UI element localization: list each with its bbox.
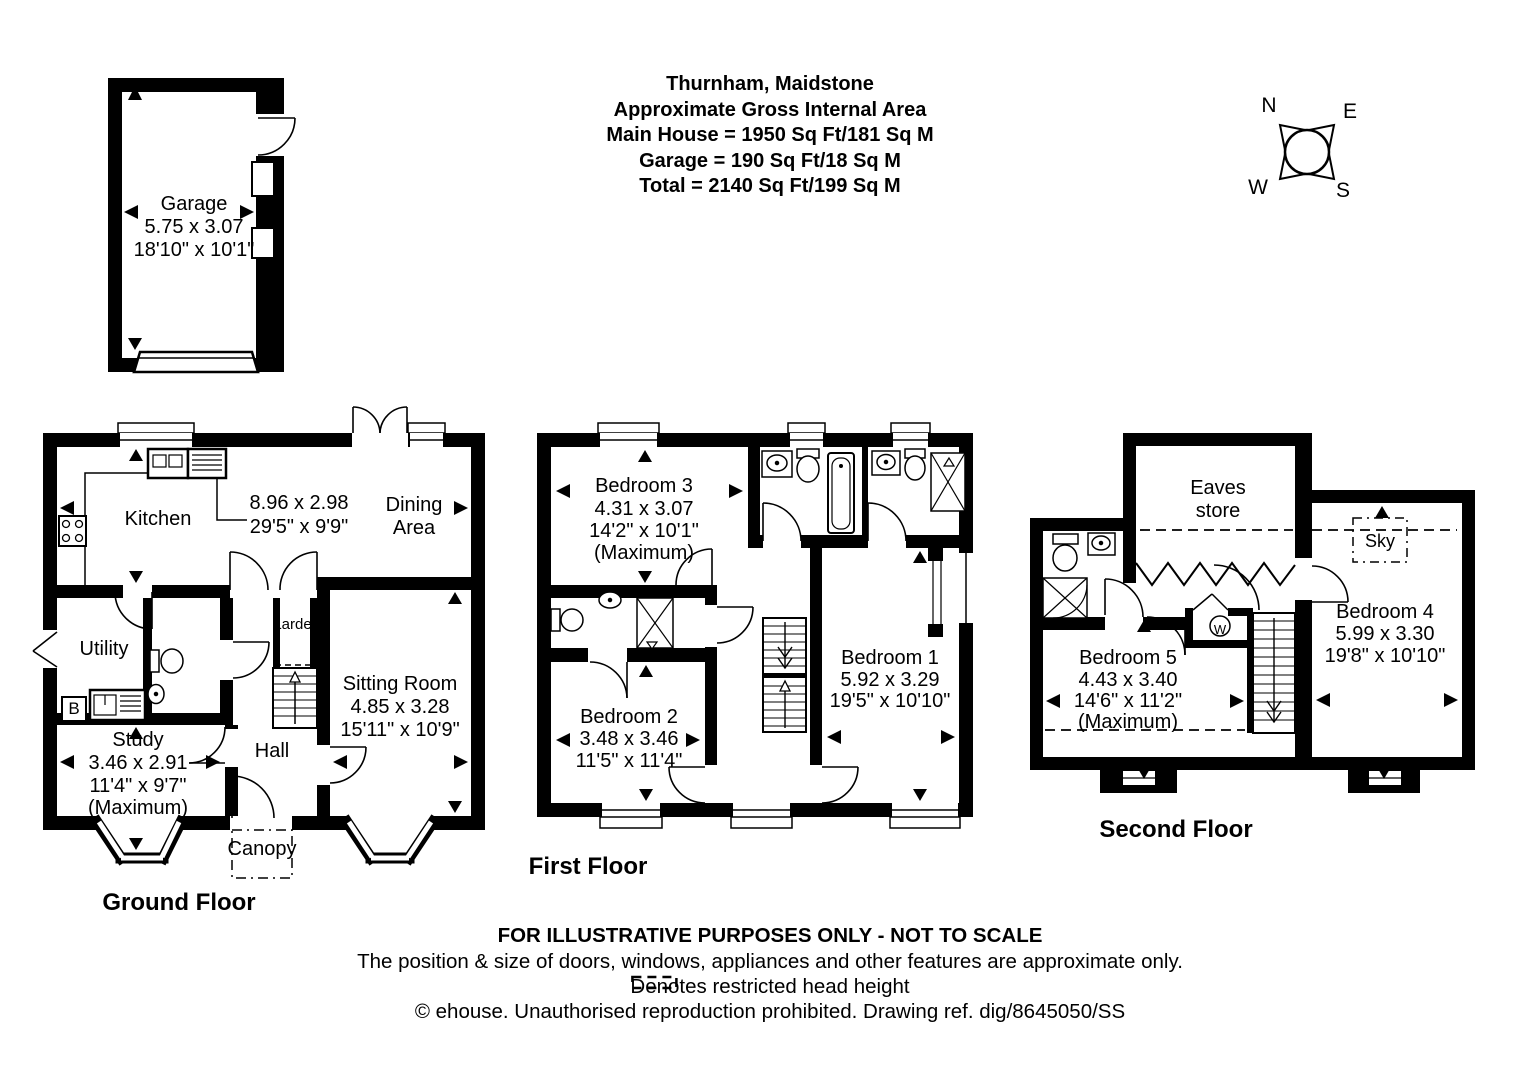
compass-n: N — [1261, 95, 1276, 117]
ground-floor-title: Ground Floor — [102, 892, 255, 914]
second-floor-stairs — [1253, 613, 1295, 733]
sitting-room-dims-imperial: 15'11" x 10'9" — [340, 719, 459, 741]
eaves-store-label2: store — [1196, 500, 1240, 522]
bedroom4-dims-metric: 5.99 x 3.30 — [1336, 623, 1435, 645]
bedroom5-dims-metric: 4.43 x 3.40 — [1079, 669, 1178, 691]
washer-label: W — [1214, 619, 1226, 641]
utility-label: Utility — [80, 638, 129, 660]
compass-icon — [1280, 125, 1334, 179]
utility-sink-icon — [90, 690, 145, 720]
hob-icon — [59, 516, 86, 546]
garage-dims-imperial: 18'10" x 10'1" — [134, 239, 255, 261]
sitting-room-dims-metric: 4.85 x 3.28 — [351, 696, 450, 718]
first-floor-title: First Floor — [529, 856, 648, 878]
wc-toilet-icon — [150, 649, 183, 673]
garage-label: Garage — [161, 193, 228, 215]
dormer-window-left — [1100, 757, 1177, 793]
canopy-label: Canopy — [228, 838, 297, 860]
bedroom3-max-note: (Maximum) — [594, 542, 694, 564]
bedroom3-dims-imperial: 14'2" x 10'1" — [589, 520, 699, 542]
bedroom5-dims-imperial: 14'6" x 11'2" — [1074, 690, 1182, 712]
boiler-label: B — [68, 698, 79, 720]
bedroom2-dims-imperial: 11'5" x 11'4" — [576, 750, 683, 772]
bedroom5-max-note: (Maximum) — [1078, 711, 1178, 733]
study-label: Study — [112, 729, 163, 751]
title-block: Thurnham, Maidstone Approximate Gross In… — [606, 72, 933, 200]
bedroom2-label: Bedroom 2 — [580, 706, 678, 728]
floorplan-page: Thurnham, Maidstone Approximate Gross In… — [0, 0, 1528, 1080]
garage-dims-metric: 5.75 x 3.07 — [145, 216, 244, 238]
study-dims-metric: 3.46 x 2.91 — [89, 752, 188, 774]
bedroom5-label: Bedroom 5 — [1079, 647, 1177, 669]
title-line: Approximate Gross Internal Area — [606, 98, 933, 124]
bedroom4-label: Bedroom 4 — [1336, 601, 1434, 623]
footer-restricted-note: Denotes restricted head height — [630, 975, 909, 999]
garage-vehicle-door — [134, 352, 258, 372]
title-line: Garage = 190 Sq Ft/18 Sq M — [606, 149, 933, 175]
sitting-room-label: Sitting Room — [343, 673, 458, 695]
bedroom3-dims-metric: 4.31 x 3.07 — [595, 498, 694, 520]
hall-label: Hall — [255, 740, 289, 762]
bedroom1-label: Bedroom 1 — [841, 647, 939, 669]
ground-floor-stairs — [273, 668, 317, 728]
bedroom2-dims-metric: 3.48 x 3.46 — [580, 728, 679, 750]
kitchen-dining-dims-imperial: 29'5" x 9'9" — [250, 516, 349, 538]
study-max-note: (Maximum) — [88, 797, 188, 819]
title-line: Main House = 1950 Sq Ft/181 Sq M — [606, 123, 933, 149]
wc-basin-icon — [148, 685, 164, 704]
second-floor-title: Second Floor — [1099, 819, 1252, 841]
footer-disclaimer: FOR ILLUSTRATIVE PURPOSES ONLY - NOT TO … — [498, 924, 1043, 948]
compass-e: E — [1343, 101, 1357, 123]
kitchen-sink-icon — [148, 449, 226, 478]
compass-w: W — [1248, 177, 1268, 199]
restricted-head-height-symbol — [630, 975, 678, 990]
bedroom3-label: Bedroom 3 — [595, 475, 693, 497]
footer-approximate-note: The position & size of doors, windows, a… — [357, 950, 1183, 974]
larder-label: Larder — [273, 614, 316, 636]
study-dims-imperial: 11'4" x 9'7" — [89, 775, 186, 797]
kitchen-dining-dims-metric: 8.96 x 2.98 — [250, 492, 349, 514]
compass-s: S — [1336, 180, 1350, 202]
dining-area-label: Dining — [386, 494, 443, 516]
dining-area-label2: Area — [393, 517, 435, 539]
bedroom1-dims-metric: 5.92 x 3.29 — [841, 669, 940, 691]
patio-doors — [352, 407, 408, 447]
bedroom1-dims-imperial: 19'5" x 10'10" — [830, 690, 951, 712]
title-line: Thurnham, Maidstone — [606, 72, 933, 98]
bedroom4-dims-imperial: 19'8" x 10'10" — [1325, 645, 1446, 667]
footer-copyright: © ehouse. Unauthorised reproduction proh… — [415, 1000, 1125, 1024]
kitchen-label: Kitchen — [125, 508, 192, 530]
title-line: Total = 2140 Sq Ft/199 Sq M — [606, 174, 933, 200]
first-floor-stairs — [763, 618, 806, 732]
skylight-label: Sky — [1365, 530, 1395, 552]
eaves-store-label: Eaves — [1190, 477, 1246, 499]
